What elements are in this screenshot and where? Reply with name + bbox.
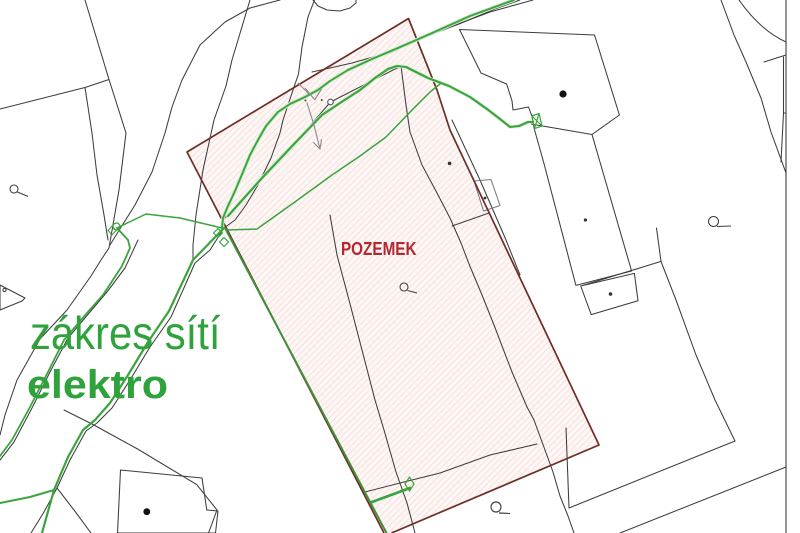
svg-text:zákres sítí: zákres sítí — [30, 307, 221, 359]
svg-text:elektro: elektro — [27, 363, 168, 407]
svg-text:POZEMEK: POZEMEK — [341, 238, 417, 259]
